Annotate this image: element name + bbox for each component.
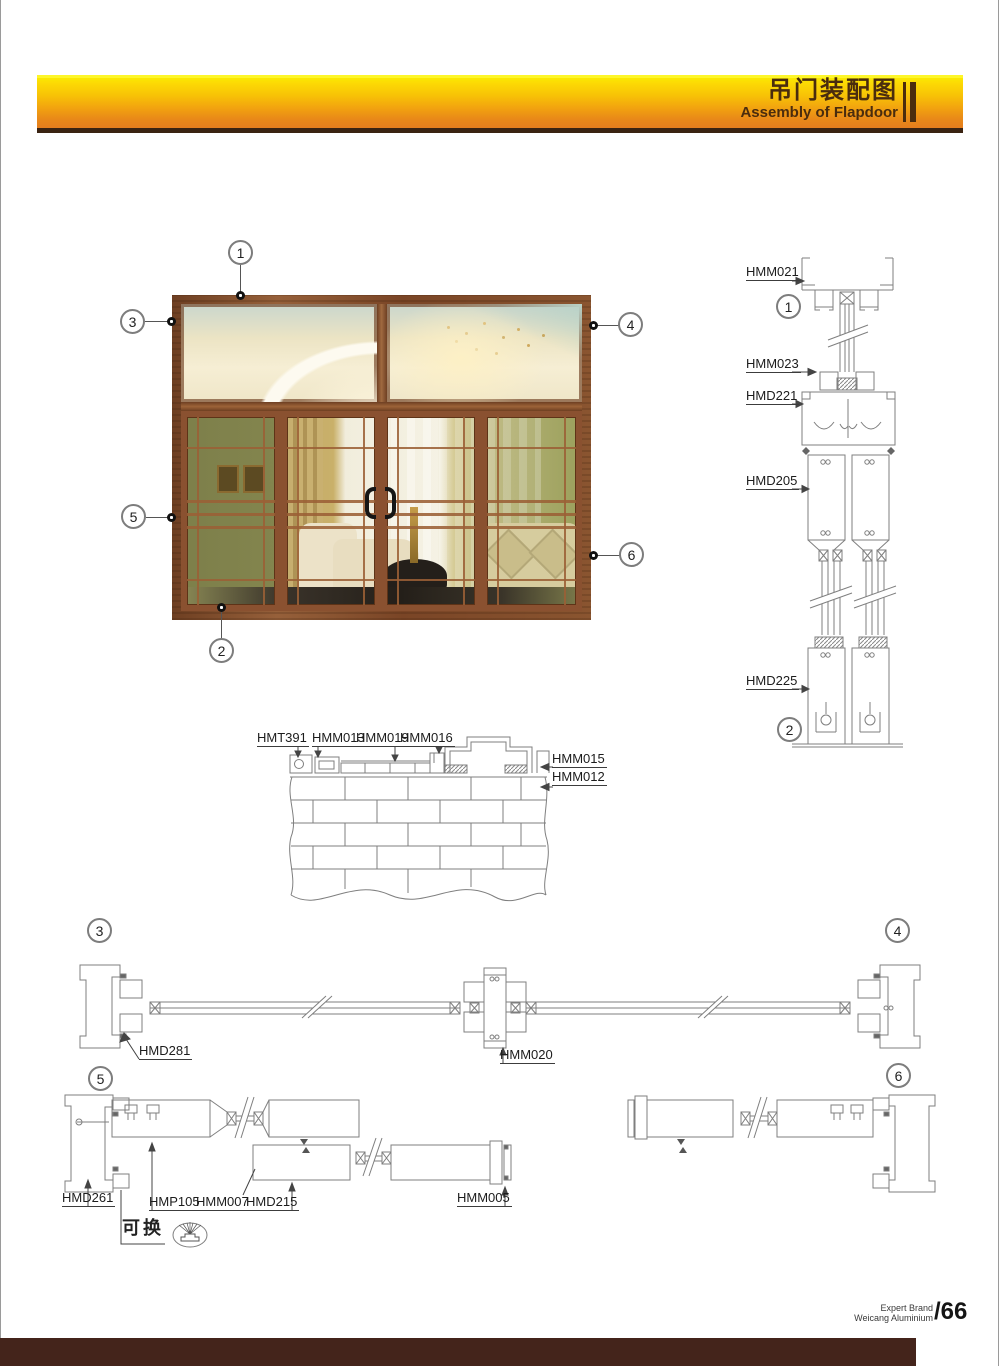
frame-midrail — [181, 402, 582, 411]
catalog-page: 吊门装配图 Assembly of Flapdoor — [0, 0, 1000, 1366]
callout-dot-icon — [217, 603, 226, 612]
part-label: HMD215 — [246, 1195, 299, 1211]
callout-dot-icon — [167, 317, 176, 326]
part-label: HMD221 — [746, 389, 799, 405]
banner-bar-icon — [910, 82, 916, 122]
part-label: HMD205 — [746, 474, 799, 490]
callout-2: 2 — [209, 638, 234, 663]
part-label: HMD281 — [139, 1044, 192, 1060]
callout-line — [146, 517, 169, 518]
callout-6: 6 — [619, 542, 644, 567]
detail-marker-4: 4 — [885, 918, 910, 943]
part-label: HMM021 — [746, 265, 801, 281]
header-titles: 吊门装配图 Assembly of Flapdoor — [740, 78, 898, 122]
banner-underline — [37, 128, 963, 133]
callout-line — [597, 555, 620, 556]
detail-marker-6: 6 — [886, 1063, 911, 1088]
brand-line: Expert Brand — [854, 1303, 933, 1313]
callout-dot-icon — [589, 551, 598, 560]
footer-bar — [0, 1338, 916, 1366]
door-panel-3 — [381, 411, 481, 611]
page-subtitle: Assembly of Flapdoor — [740, 104, 898, 122]
callout-line — [145, 321, 169, 322]
part-label: HMM007 — [196, 1195, 251, 1211]
flapdoor-photo — [172, 295, 591, 620]
header-banner: 吊门装配图 Assembly of Flapdoor — [37, 75, 963, 128]
page-left-border — [0, 0, 1, 1366]
transom-windows — [181, 304, 582, 402]
sliding-door-panels — [181, 411, 582, 611]
callout-1: 1 — [228, 240, 253, 265]
part-label: HMD261 — [62, 1191, 115, 1207]
detail-marker-1: 1 — [776, 294, 801, 319]
chandelier — [447, 326, 450, 329]
page-right-border — [998, 0, 999, 1366]
page-title: 吊门装配图 — [740, 78, 898, 104]
page-number: /66 — [934, 1298, 967, 1326]
detail-marker-5: 5 — [88, 1066, 113, 1091]
brand-line: Weicang Aluminium — [854, 1313, 933, 1323]
part-label: HMM012 — [552, 770, 607, 786]
callout-dot-icon — [167, 513, 176, 522]
part-label: HMM016 — [400, 731, 455, 747]
banner-bar-icon — [903, 82, 906, 122]
brand-block: Expert Brand Weicang Aluminium — [854, 1303, 933, 1323]
part-label: HMP105 — [149, 1195, 202, 1211]
detail-marker-3: 3 — [87, 918, 112, 943]
door-panel-1 — [181, 411, 281, 611]
part-label: HMM005 — [457, 1191, 512, 1207]
callout-5: 5 — [121, 504, 146, 529]
callout-dot-icon — [236, 291, 245, 300]
transom-mullion — [377, 304, 387, 402]
detail-marker-2: 2 — [777, 717, 802, 742]
part-label: HMD225 — [746, 674, 799, 690]
part-label: HMM023 — [746, 357, 801, 373]
callout-3: 3 — [120, 309, 145, 334]
brush-seal-icon — [170, 1220, 210, 1250]
callout-4: 4 — [618, 312, 643, 337]
door-handle-icon — [385, 487, 396, 519]
transom-pane-left — [181, 304, 377, 402]
door-handle-icon — [365, 487, 376, 519]
callout-line — [221, 612, 222, 639]
replaceable-note: 可换 — [122, 1214, 164, 1240]
part-label: HMM020 — [500, 1048, 555, 1064]
transom-pane-right — [387, 304, 583, 402]
callout-line — [597, 325, 619, 326]
part-label: HMM015 — [552, 752, 607, 768]
door-panel-4 — [481, 411, 582, 611]
callout-line — [240, 265, 241, 293]
callout-dot-icon — [589, 321, 598, 330]
part-label: HMT391 — [257, 731, 309, 747]
